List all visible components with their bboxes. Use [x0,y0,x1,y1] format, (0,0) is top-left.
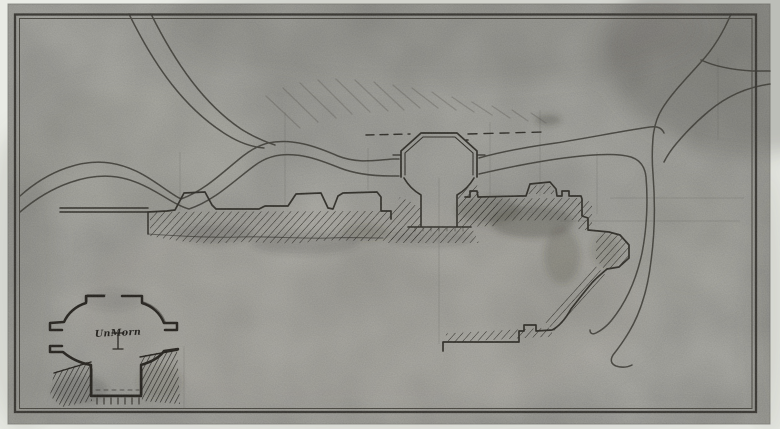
paper-grain [8,4,770,424]
site-plan-drawing: UnMorn [0,0,780,429]
scanned-drawing: UnMorn [0,0,780,429]
